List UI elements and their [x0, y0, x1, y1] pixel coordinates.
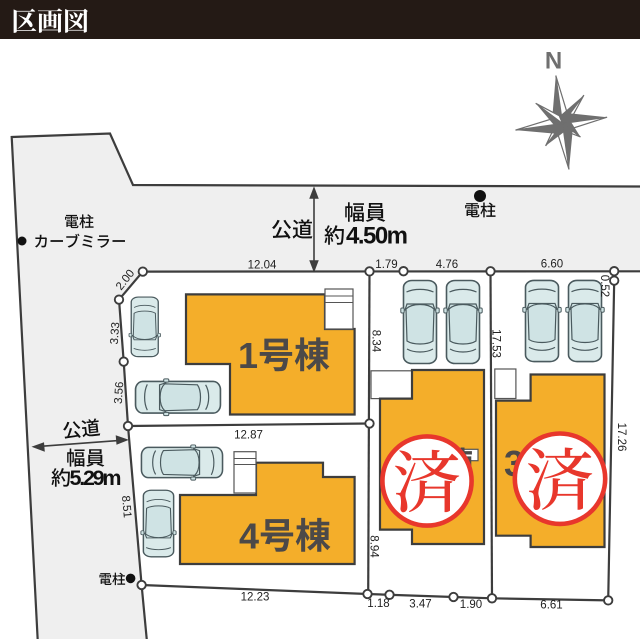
svg-text:4: 4 — [239, 516, 259, 557]
svg-text:8.94: 8.94 — [368, 535, 380, 558]
svg-text:12.23: 12.23 — [241, 592, 270, 604]
svg-text:3.56: 3.56 — [113, 381, 127, 404]
svg-text:6.61: 6.61 — [540, 600, 562, 612]
svg-text:1.18: 1.18 — [367, 598, 389, 610]
svg-text:8.34: 8.34 — [370, 330, 382, 353]
svg-text:6.60: 6.60 — [541, 259, 563, 271]
svg-text:1.79: 1.79 — [375, 259, 397, 271]
svg-text:1.90: 1.90 — [460, 599, 482, 611]
svg-text:17.53: 17.53 — [490, 329, 502, 358]
svg-text:3.33: 3.33 — [109, 322, 123, 345]
svg-text:12.87: 12.87 — [234, 430, 263, 442]
svg-text:3.47: 3.47 — [409, 599, 431, 611]
svg-text:N: N — [545, 48, 562, 75]
svg-text:1: 1 — [238, 335, 258, 376]
svg-text:4.76: 4.76 — [436, 259, 458, 271]
svg-text:17.26: 17.26 — [615, 423, 627, 452]
svg-text:0.52: 0.52 — [598, 275, 610, 297]
svg-text:12.04: 12.04 — [248, 260, 277, 272]
svg-text:4.50m: 4.50m — [346, 223, 408, 250]
svg-text:5.29m: 5.29m — [70, 466, 122, 490]
svg-text:8.51: 8.51 — [119, 495, 133, 518]
